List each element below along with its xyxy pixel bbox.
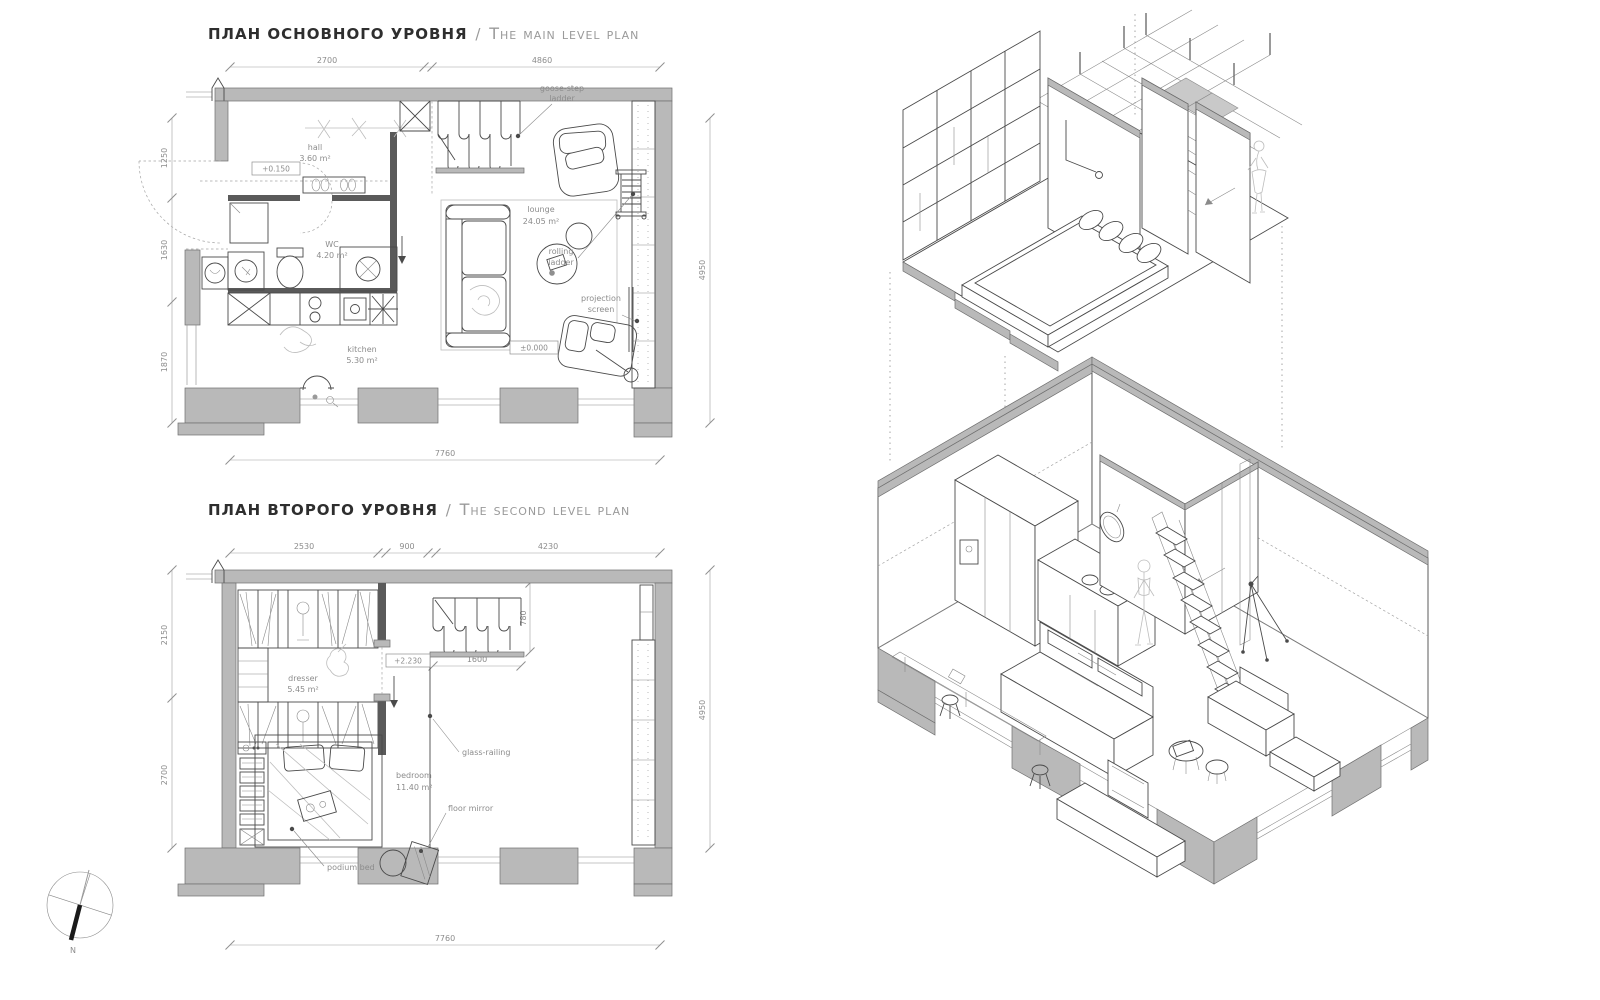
architectural-drawing-sheet: План основного уровня / The main level p… bbox=[0, 0, 1600, 1000]
goose-step-ladder-plan bbox=[436, 101, 524, 173]
annotation-goose-step: goose-step bbox=[540, 84, 584, 93]
second-plan-labels: dresser 5.45 m² bedroom 11.40 m² +2.230 … bbox=[287, 654, 510, 872]
annotation-floor-mirror: floor mirror bbox=[448, 804, 494, 813]
room-label-lounge: lounge bbox=[527, 205, 554, 214]
podium-bed bbox=[255, 735, 382, 847]
drawing-canvas: 2700 4860 1250 1630 1870 4950 7760 bbox=[0, 0, 1600, 1000]
compass: N bbox=[38, 863, 121, 955]
bookcase-wall-loft bbox=[632, 585, 655, 845]
level-marker: +2.230 bbox=[394, 657, 422, 666]
annotation-goose-step: ladder bbox=[549, 94, 575, 103]
dim-label: 2150 bbox=[160, 625, 169, 645]
sofa bbox=[446, 205, 510, 347]
dim-label: 2700 bbox=[317, 56, 337, 65]
goose-step-ladder-loft bbox=[430, 598, 524, 657]
room-area-bedroom: 11.40 m² bbox=[396, 783, 432, 792]
annotation-projection-screen: projection bbox=[581, 294, 621, 303]
room-label-hall: hall bbox=[308, 143, 322, 152]
dim-label: 2530 bbox=[294, 542, 314, 551]
room-label-bedroom: bedroom bbox=[396, 771, 432, 780]
room-label-kitchen: kitchen bbox=[347, 345, 376, 354]
dim-label: 1630 bbox=[160, 240, 169, 260]
annotation-podium-bed: podium bed bbox=[327, 863, 375, 872]
stool bbox=[940, 695, 960, 719]
dim-label: 780 bbox=[519, 610, 528, 625]
annotation-glass-railing: glass-railing bbox=[462, 748, 510, 757]
main-plan-interior bbox=[200, 101, 655, 407]
dim-label: 1870 bbox=[160, 352, 169, 372]
wardrobe-top bbox=[238, 590, 378, 648]
dim-label: 1250 bbox=[160, 148, 169, 168]
annotation-rolling-ladder: rolling bbox=[549, 247, 574, 256]
room-area-dresser: 5.45 m² bbox=[287, 685, 318, 694]
second-level-plan: 2530 900 4230 2150 2700 4950 7760 1600 7… bbox=[160, 542, 715, 950]
daybed bbox=[556, 314, 638, 378]
second-plan-interior bbox=[238, 583, 655, 884]
dim-label: 900 bbox=[399, 542, 414, 551]
armchair-iso bbox=[1208, 667, 1340, 791]
dim-label: 7760 bbox=[435, 934, 455, 943]
dim-label: 4950 bbox=[698, 260, 707, 280]
main-level-plan: 2700 4860 1250 1630 1870 4950 7760 bbox=[139, 56, 715, 465]
room-area-hall: 3.60 m² bbox=[299, 154, 330, 163]
room-label-dresser: dresser bbox=[288, 674, 318, 683]
annotation-rolling-ladder: ladder bbox=[548, 258, 574, 267]
wardrobe-bottom bbox=[238, 702, 378, 748]
dim-label: 2700 bbox=[160, 765, 169, 785]
dim-label: 7760 bbox=[435, 449, 455, 458]
level-marker: +0.150 bbox=[262, 165, 290, 174]
compass-north-label: N bbox=[70, 946, 76, 955]
room-area-wc: 4.20 m² bbox=[316, 251, 347, 260]
room-area-kitchen: 5.30 m² bbox=[346, 356, 377, 365]
room-area-lounge: 24.05 m² bbox=[523, 217, 559, 226]
room-label-wc: WC bbox=[325, 240, 339, 249]
level-marker: ±0.000 bbox=[520, 344, 548, 353]
dim-label: 4950 bbox=[698, 700, 707, 720]
iso-main-level bbox=[878, 357, 1428, 884]
annotation-projection-screen: screen bbox=[588, 305, 615, 314]
armchair bbox=[552, 122, 621, 198]
bedroom-shelving bbox=[238, 742, 266, 845]
dim-label: 4860 bbox=[532, 56, 552, 65]
dim-label: 4230 bbox=[538, 542, 558, 551]
